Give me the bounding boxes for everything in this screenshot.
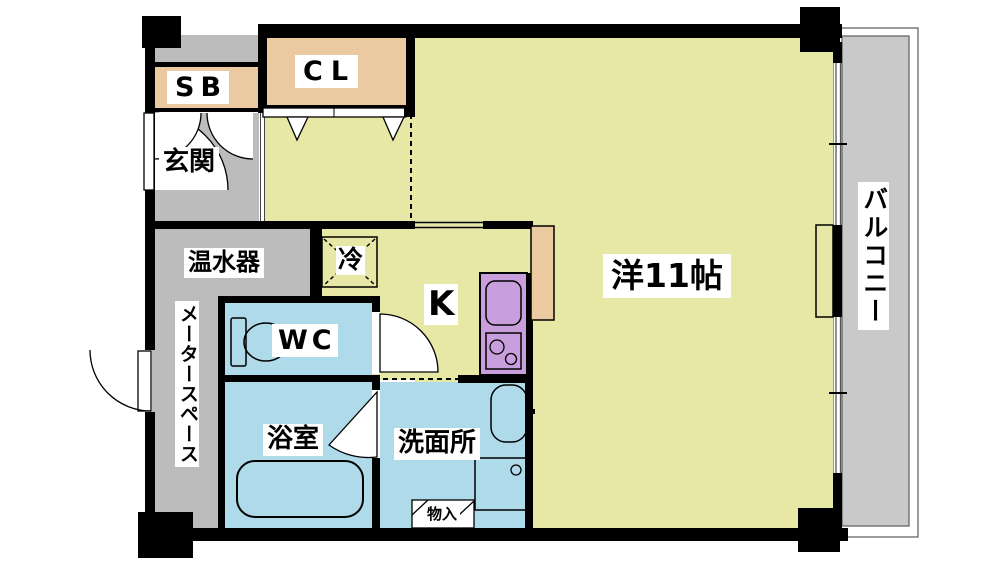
corner-post-bottom-right [798, 508, 840, 552]
label-entrance: 玄関 [159, 147, 219, 179]
corner-post-top-left [142, 16, 181, 48]
label-toilet: WC [272, 324, 338, 357]
floor-plan-drawing [0, 0, 1000, 562]
label-storage: 物入 [424, 505, 460, 524]
meter-space-door [90, 350, 151, 411]
room-side-counter [531, 226, 554, 320]
label-bathroom: 浴室 [263, 424, 323, 456]
floor-plan: 洋11帖 K CL SB 玄関 温水器 メータースペース 冷 WC 浴室 洗面所… [0, 0, 1000, 562]
corner-post-bottom-left [138, 512, 193, 558]
label-shoe-box: SB [167, 71, 229, 104]
faucet [526, 409, 535, 414]
label-washroom: 洗面所 [394, 428, 480, 460]
label-closet: CL [295, 55, 358, 88]
label-meter-space: メータースペース [175, 301, 199, 467]
kitchen-counter [480, 273, 527, 375]
label-refrigerator: 冷 [336, 246, 365, 275]
label-water-heater: 温水器 [184, 248, 264, 278]
label-main-room: 洋11帖 [603, 254, 731, 298]
label-kitchen: K [424, 284, 458, 325]
corner-post-top-right [800, 7, 840, 52]
label-balcony: バルコニー [858, 182, 889, 330]
entrance-step-edge [261, 113, 265, 221]
entrance-door-leaf [144, 113, 154, 190]
